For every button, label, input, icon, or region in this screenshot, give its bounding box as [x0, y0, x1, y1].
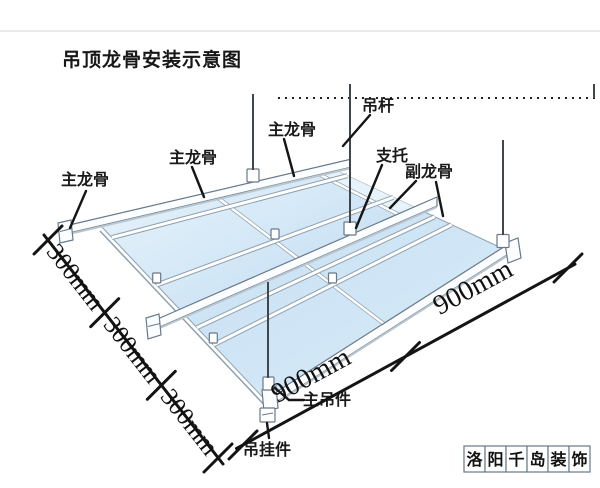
watermark-char-4: 岛 — [529, 450, 545, 469]
hanger-clip-right — [497, 235, 509, 248]
watermark-char-2: 阳 — [487, 451, 503, 469]
label-support: 支托 — [375, 146, 408, 165]
diagram-canvas: 吊顶龙骨安装示意图 — [0, 0, 600, 488]
watermark-char-6: 饰 — [571, 450, 587, 469]
label-secondary-keel: 副龙骨 — [405, 162, 453, 181]
dim-left-1: 300mm — [41, 239, 110, 316]
watermark: 洛 阳 千 岛 装 饰 — [464, 446, 590, 472]
page-title: 吊顶龙骨安装示意图 — [62, 48, 242, 71]
dim-left-3: 300mm — [155, 384, 224, 461]
label-hanging-piece: 吊挂件 — [243, 440, 291, 459]
label-hanger-rod: 吊杆 — [362, 96, 394, 115]
label-main-keel-2: 主龙骨 — [169, 148, 217, 167]
support-bracket — [344, 222, 356, 235]
watermark-char-1: 洛 — [466, 450, 483, 469]
watermark-char-3: 千 — [508, 451, 524, 469]
watermark-char-5: 装 — [549, 450, 566, 469]
ceiling-keel-diagram: 吊顶龙骨安装示意图 — [0, 0, 600, 488]
hanger-clip-1 — [247, 169, 259, 182]
label-main-keel-3: 主龙骨 — [268, 120, 316, 139]
label-main-keel-1: 主龙骨 — [61, 170, 109, 189]
